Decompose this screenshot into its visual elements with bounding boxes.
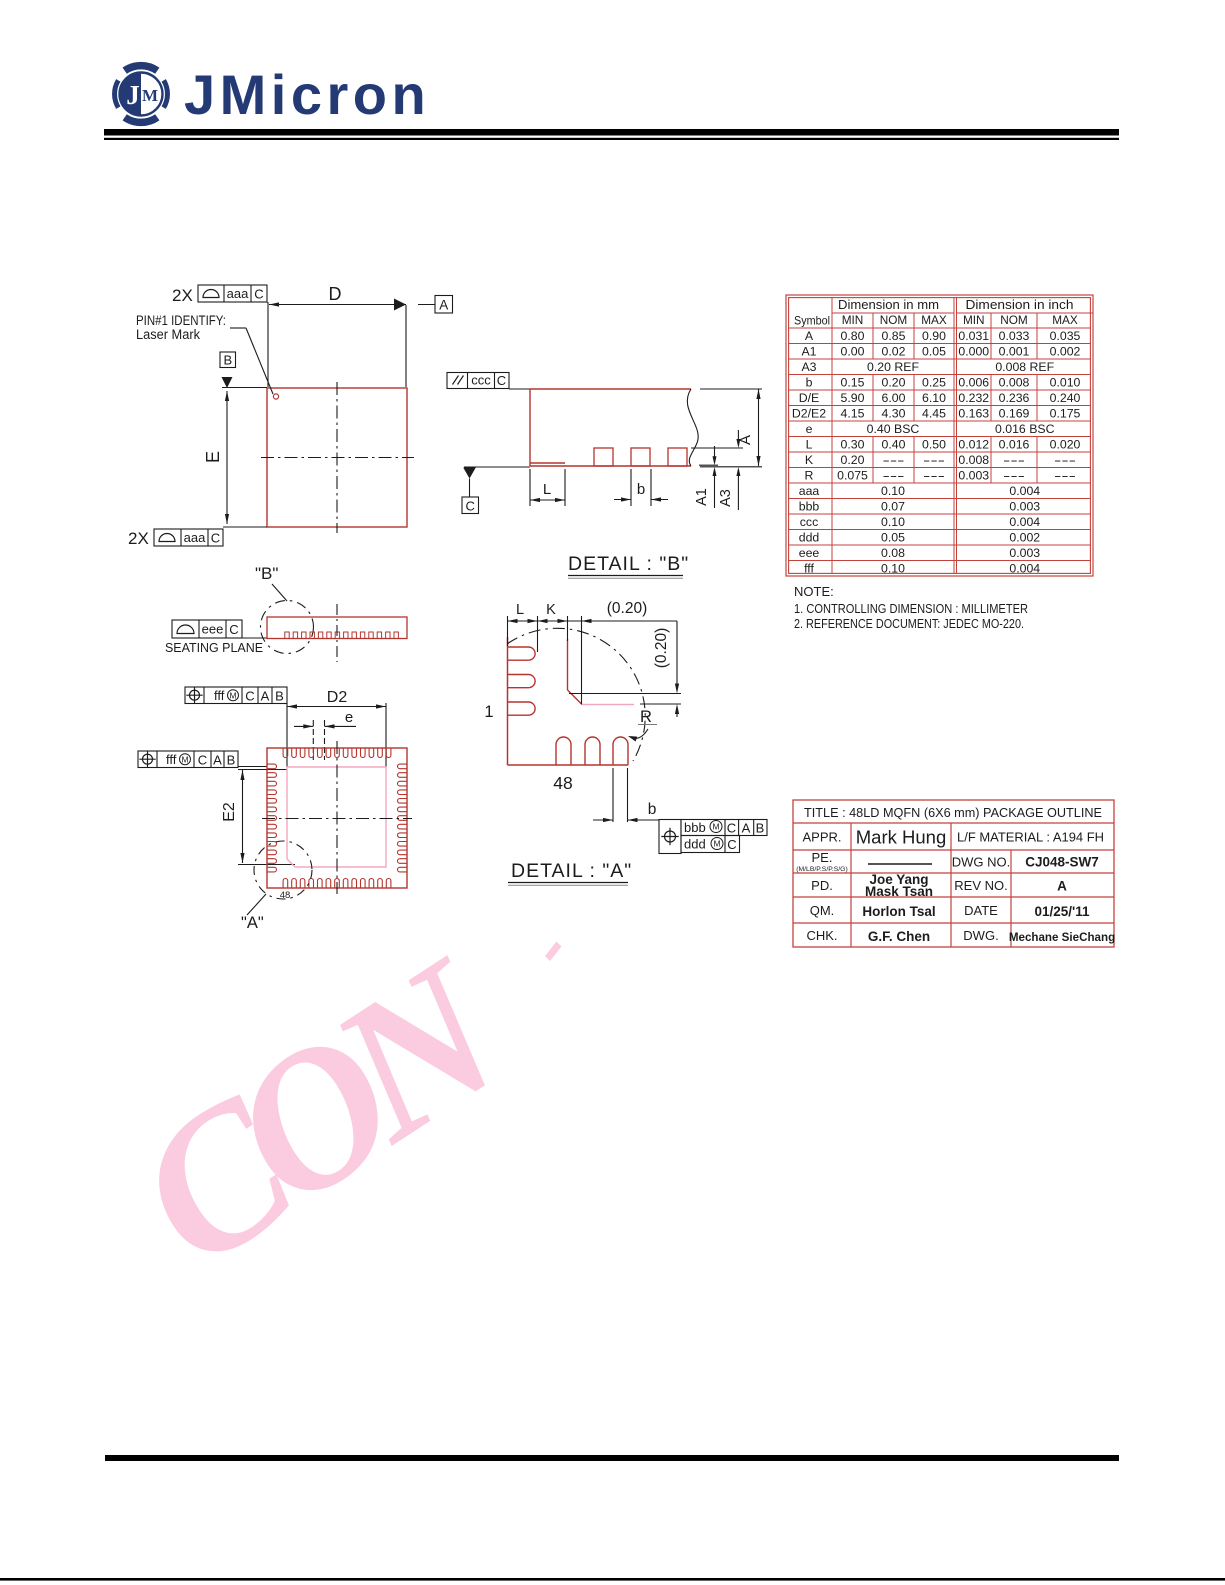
svg-text:A: A [742, 821, 751, 836]
svg-text:eee: eee [799, 546, 820, 560]
svg-text:0.10: 0.10 [881, 561, 905, 575]
svg-text:fff: fff [166, 752, 177, 767]
svg-text:2X: 2X [172, 286, 193, 305]
svg-text:B: B [275, 689, 284, 704]
svg-text:D2/E2: D2/E2 [792, 406, 826, 420]
svg-text:0.016: 0.016 [999, 437, 1030, 451]
svg-text:ddd: ddd [684, 837, 706, 852]
svg-text:Horlon Tsal: Horlon Tsal [862, 904, 935, 919]
svg-text:CHK.: CHK. [806, 928, 837, 943]
svg-text:A3: A3 [718, 489, 734, 507]
svg-text:A: A [261, 689, 270, 704]
svg-text:01/25/'11: 01/25/'11 [1034, 904, 1090, 919]
svg-text:0.003: 0.003 [958, 468, 989, 482]
svg-text:REV NO.: REV NO. [954, 878, 1007, 893]
svg-text:NOM: NOM [880, 313, 908, 327]
svg-text:0.07: 0.07 [881, 499, 905, 513]
svg-text:0.175: 0.175 [1050, 406, 1081, 420]
svg-text:---: --- [1054, 453, 1076, 467]
svg-text:(0.20): (0.20) [607, 600, 648, 617]
svg-text:0.40: 0.40 [882, 437, 906, 451]
svg-text:0.85: 0.85 [882, 329, 906, 343]
svg-text:6.10: 6.10 [922, 391, 946, 405]
svg-text:NOM: NOM [1000, 313, 1028, 327]
svg-text:CON: CON [100, 916, 541, 1309]
svg-text:eee: eee [202, 622, 224, 637]
svg-text:L: L [806, 437, 813, 451]
svg-text:CJ048-SW7: CJ048-SW7 [1025, 855, 1099, 870]
svg-text:DETAIL : "A": DETAIL : "A" [511, 860, 632, 882]
svg-text:DATE: DATE [964, 903, 998, 918]
svg-text:0.163: 0.163 [958, 406, 989, 420]
svg-text:M: M [712, 822, 719, 832]
svg-text:---: --- [883, 453, 905, 467]
svg-text:Mask Tsan: Mask Tsan [865, 884, 933, 899]
svg-text:ccc: ccc [471, 373, 491, 388]
svg-text:MIN: MIN [842, 313, 864, 327]
svg-text:ccc: ccc [800, 515, 818, 529]
svg-text:C: C [254, 287, 263, 302]
svg-text:0.169: 0.169 [999, 406, 1030, 420]
svg-text:0.80: 0.80 [841, 329, 865, 343]
svg-text:0.035: 0.035 [1050, 329, 1081, 343]
svg-text:---: --- [1003, 453, 1025, 467]
svg-text:ddd: ddd [799, 530, 820, 544]
svg-text:6.00: 6.00 [882, 391, 906, 405]
svg-text:Mechane SieChang: Mechane SieChang [1009, 931, 1115, 944]
svg-text:A: A [805, 329, 814, 343]
svg-text:48: 48 [553, 773, 572, 793]
svg-text:0.05: 0.05 [922, 344, 946, 358]
svg-text:R: R [805, 468, 814, 482]
svg-text:A: A [1057, 879, 1067, 894]
svg-text:JMicron: JMicron [184, 63, 430, 126]
svg-text:Dimension in inch: Dimension in inch [966, 297, 1074, 312]
svg-text:DWG NO.: DWG NO. [952, 855, 1011, 870]
svg-text:MAX: MAX [921, 313, 947, 327]
svg-text:0.004: 0.004 [1009, 515, 1040, 529]
svg-text:C: C [229, 622, 238, 637]
svg-text:---: --- [883, 468, 905, 482]
svg-text:0.25: 0.25 [922, 375, 946, 389]
svg-text:C: C [497, 373, 506, 388]
svg-text:0.20 REF: 0.20 REF [867, 360, 919, 374]
svg-text:A1: A1 [801, 344, 816, 358]
svg-text:b: b [648, 801, 657, 818]
svg-text:K: K [805, 453, 814, 467]
svg-text:bbb: bbb [684, 820, 706, 835]
svg-text:0.010: 0.010 [1050, 375, 1081, 389]
svg-text:E2: E2 [221, 802, 238, 822]
svg-text:0.10: 0.10 [881, 484, 905, 498]
svg-text:5.90: 5.90 [841, 391, 865, 405]
svg-text:aaa: aaa [227, 286, 249, 301]
svg-text:2X: 2X [128, 529, 149, 548]
svg-text:1. CONTROLLING DIMENSION : MIL: 1. CONTROLLING DIMENSION : MILLIMETER [794, 601, 1028, 616]
svg-text:0.004: 0.004 [1009, 561, 1040, 575]
svg-text:4.15: 4.15 [841, 406, 865, 420]
svg-text:---: --- [923, 453, 945, 467]
svg-text:DWG.: DWG. [963, 928, 998, 943]
svg-text:b: b [806, 375, 813, 389]
svg-text:0.033: 0.033 [999, 329, 1030, 343]
svg-text:"A": "A" [241, 914, 264, 932]
svg-text:PD.: PD. [811, 878, 833, 893]
svg-text:0.008 REF: 0.008 REF [995, 360, 1054, 374]
svg-text:Mark Hung: Mark Hung [856, 827, 946, 848]
svg-text:0.006: 0.006 [958, 375, 989, 389]
svg-text:M: M [181, 754, 188, 764]
svg-text:C: C [727, 837, 736, 852]
svg-text:L/F MATERIAL : A194 FH: L/F MATERIAL : A194 FH [957, 830, 1104, 845]
svg-text:0.000: 0.000 [958, 344, 989, 358]
svg-text:QM.: QM. [810, 903, 835, 918]
svg-text:SEATING PLANE: SEATING PLANE [165, 640, 263, 655]
svg-text:K: K [546, 602, 556, 618]
svg-text:0.008: 0.008 [999, 375, 1030, 389]
svg-text:PIN#1 IDENTIFY:: PIN#1 IDENTIFY: [136, 313, 226, 328]
svg-text:G.F. Chen: G.F. Chen [868, 929, 930, 944]
svg-text:0.20: 0.20 [841, 453, 865, 467]
svg-text:Symbol: Symbol [794, 314, 830, 328]
svg-text:0.008: 0.008 [958, 453, 989, 467]
svg-text:0.004: 0.004 [1009, 484, 1040, 498]
svg-text:APPR.: APPR. [802, 830, 841, 845]
svg-text:B: B [756, 821, 765, 836]
svg-text:0.001: 0.001 [999, 344, 1030, 358]
svg-text:M: M [142, 86, 158, 105]
svg-text:L: L [516, 602, 524, 618]
svg-text:"B": "B" [255, 564, 278, 583]
svg-text:MIN: MIN [963, 313, 985, 327]
svg-text:(M/LB/P.S/P.S/G): (M/LB/P.S/P.S/G) [796, 866, 848, 873]
svg-text:A: A [213, 753, 222, 768]
svg-text:Laser Mark: Laser Mark [136, 327, 200, 342]
svg-text:L: L [543, 481, 551, 498]
svg-text:(0.20): (0.20) [653, 628, 670, 669]
svg-text:0.40 BSC: 0.40 BSC [867, 422, 920, 436]
svg-text:0.05: 0.05 [881, 530, 905, 544]
svg-text:DETAIL : "B": DETAIL : "B" [568, 553, 689, 575]
svg-text:2. REFERENCE DOCUMENT: JEDEC M: 2. REFERENCE DOCUMENT: JEDEC MO-220. [794, 616, 1024, 631]
svg-text:0.90: 0.90 [922, 329, 946, 343]
svg-text:0.031: 0.031 [958, 329, 989, 343]
svg-text:0.00: 0.00 [841, 344, 865, 358]
svg-text:0.002: 0.002 [1050, 344, 1081, 358]
svg-text:0.08: 0.08 [881, 546, 905, 560]
svg-text:C: C [245, 689, 254, 704]
svg-text:C: C [211, 531, 220, 546]
svg-text:e: e [806, 422, 813, 436]
svg-text:0.002: 0.002 [1009, 530, 1040, 544]
svg-text:A: A [439, 298, 448, 313]
svg-text:MAX: MAX [1052, 313, 1078, 327]
svg-text:e: e [345, 709, 353, 726]
svg-text:aaa: aaa [184, 530, 206, 545]
svg-text:0.236: 0.236 [999, 391, 1030, 405]
svg-text:C: C [198, 753, 207, 768]
svg-text:C: C [466, 499, 475, 514]
svg-text:0.20: 0.20 [882, 375, 906, 389]
svg-text:J: J [126, 80, 140, 110]
svg-text:0.012: 0.012 [958, 437, 989, 451]
svg-text:0.10: 0.10 [881, 515, 905, 529]
svg-text:---: --- [1054, 468, 1076, 482]
svg-text:0.075: 0.075 [837, 468, 868, 482]
svg-text:0.003: 0.003 [1009, 546, 1040, 560]
svg-text:0.016 BSC: 0.016 BSC [995, 422, 1055, 436]
svg-text:0.003: 0.003 [1009, 499, 1040, 513]
svg-text:M: M [713, 839, 720, 849]
svg-text:0.02: 0.02 [882, 344, 906, 358]
svg-text:1: 1 [484, 703, 493, 721]
svg-text:A1: A1 [694, 488, 710, 506]
svg-text:0.020: 0.020 [1050, 437, 1081, 451]
svg-text:D2: D2 [327, 689, 348, 706]
svg-text:0.30: 0.30 [841, 437, 865, 451]
svg-text:bbb: bbb [799, 499, 820, 513]
svg-text:0.15: 0.15 [841, 375, 865, 389]
svg-text:aaa: aaa [799, 484, 820, 498]
svg-text:D: D [329, 284, 342, 304]
svg-text:fff: fff [214, 688, 225, 703]
svg-text:4.30: 4.30 [882, 406, 906, 420]
svg-text:0.240: 0.240 [1050, 391, 1081, 405]
svg-text:NOTE:: NOTE: [794, 584, 834, 599]
svg-text:B: B [227, 753, 236, 768]
svg-text:fff: fff [804, 561, 814, 575]
svg-text:Dimension in mm: Dimension in mm [838, 297, 939, 312]
svg-text:E: E [203, 451, 223, 463]
svg-text:---: --- [923, 468, 945, 482]
svg-text:B: B [223, 353, 232, 368]
svg-text:---: --- [1003, 468, 1025, 482]
svg-text:4.45: 4.45 [922, 406, 946, 420]
svg-text:PE.: PE. [812, 850, 833, 865]
svg-text:TITLE : 48LD MQFN (6X6 mm): TITLE : 48LD MQFN (6X6 mm) PACKAGE OUTLI… [804, 806, 1102, 820]
svg-text:R: R [640, 708, 652, 726]
svg-text:0.50: 0.50 [922, 437, 946, 451]
svg-text:b: b [637, 481, 645, 498]
svg-text:M: M [229, 690, 236, 700]
svg-text:0.232: 0.232 [958, 391, 989, 405]
svg-text:D/E: D/E [799, 391, 820, 405]
svg-text:A3: A3 [801, 360, 816, 374]
svg-text:48: 48 [280, 890, 291, 901]
svg-text:C: C [727, 821, 736, 836]
